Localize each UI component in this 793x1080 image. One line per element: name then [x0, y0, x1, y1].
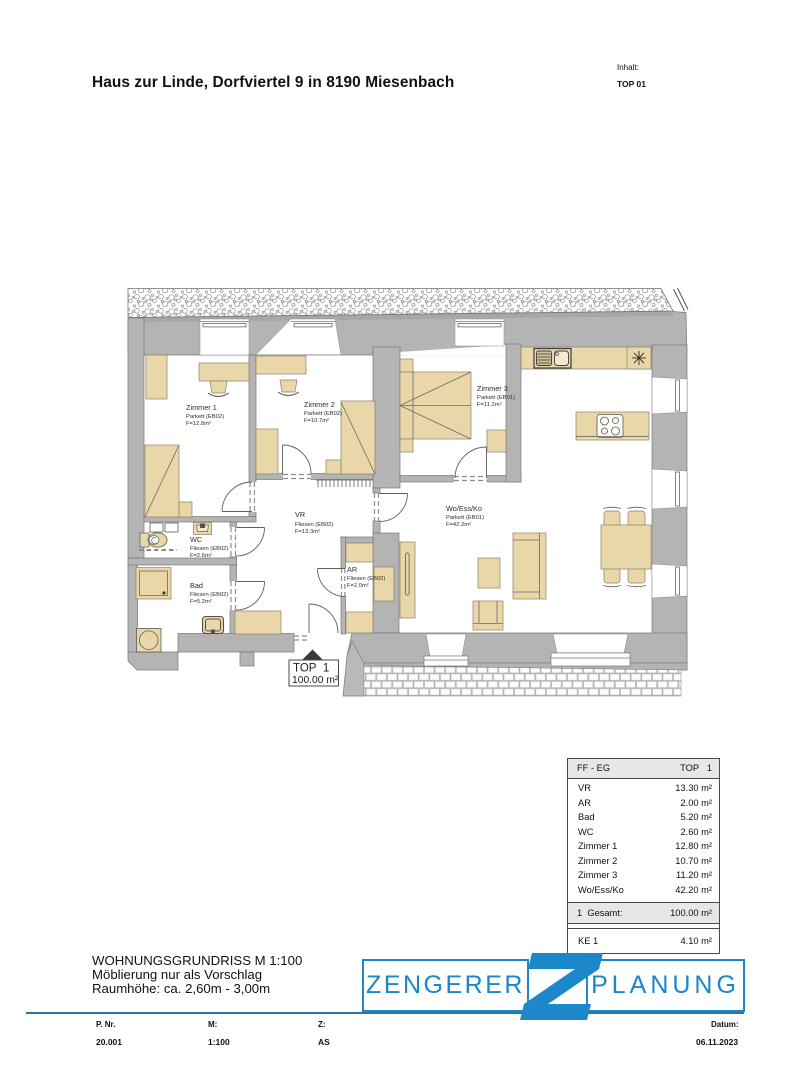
svg-text:Fliesen (EB02): Fliesen (EB02) — [190, 546, 228, 552]
svg-text:Parkett (EB01): Parkett (EB01) — [446, 515, 484, 521]
svg-text:Zimmer 2: Zimmer 2 — [304, 400, 335, 409]
svg-text:Parkett (EB02): Parkett (EB02) — [304, 411, 342, 417]
svg-text:VR: VR — [295, 510, 305, 519]
svg-text:Parkett (EB02): Parkett (EB02) — [186, 414, 224, 420]
svg-text:Zimmer 1: Zimmer 1 — [186, 403, 217, 412]
svg-text:Fliesen (EB02): Fliesen (EB02) — [190, 592, 228, 598]
svg-text:100.00 m²: 100.00 m² — [292, 675, 339, 686]
svg-text:Fliesen (EB02): Fliesen (EB02) — [347, 576, 385, 582]
svg-text:F=11.2m²: F=11.2m² — [477, 402, 502, 408]
svg-text:Zimmer 3: Zimmer 3 — [477, 384, 508, 393]
svg-text:F=42.2m²: F=42.2m² — [446, 522, 471, 528]
svg-text:F=13.3m²: F=13.3m² — [295, 529, 320, 535]
svg-text:F=2.6m²: F=2.6m² — [190, 553, 212, 559]
svg-text:AR: AR — [347, 565, 357, 574]
svg-text:F=10.7m²: F=10.7m² — [304, 418, 329, 424]
svg-text:Fliesen (EB02): Fliesen (EB02) — [295, 522, 333, 528]
svg-text:F=12.8m²: F=12.8m² — [186, 421, 211, 427]
svg-text:Bad: Bad — [190, 581, 203, 590]
svg-text:WC: WC — [190, 535, 202, 544]
svg-text:TOP 1: TOP 1 — [293, 663, 329, 675]
svg-text:F=5.2m²: F=5.2m² — [190, 599, 212, 605]
svg-text:Wo/Ess/Ko: Wo/Ess/Ko — [446, 504, 482, 513]
svg-text:F=2.0m²: F=2.0m² — [347, 583, 369, 589]
svg-text:Parkett (EB01): Parkett (EB01) — [477, 395, 515, 401]
